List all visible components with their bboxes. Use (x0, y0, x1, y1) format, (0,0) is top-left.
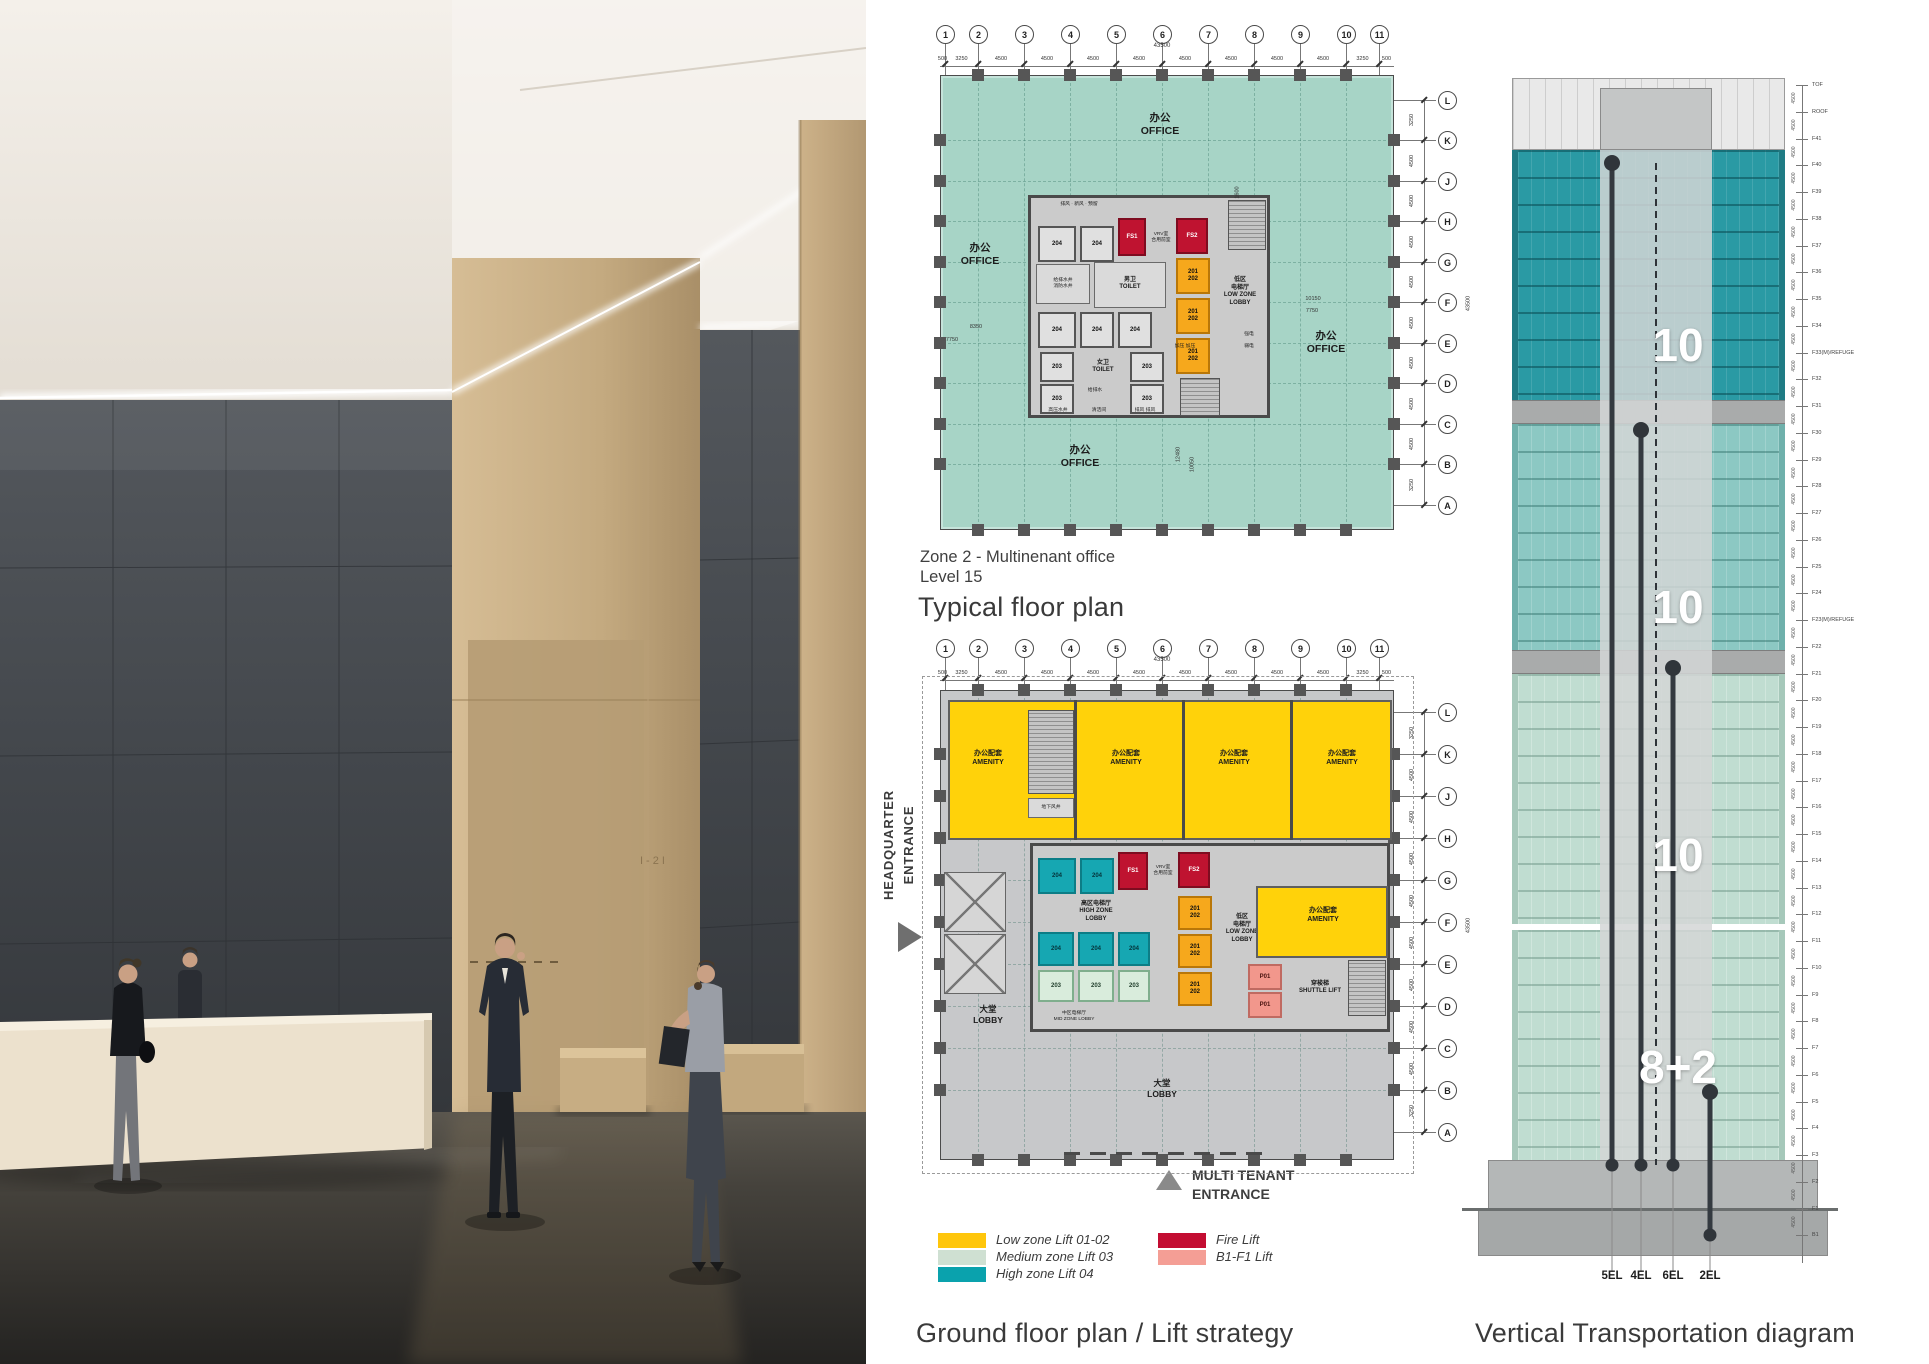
ground-grid-letter-bubble: A (1438, 1123, 1457, 1142)
floor-height-dim: 4500 (1791, 381, 1799, 403)
typical-grid-letter-bubble: E (1438, 334, 1457, 353)
ground-grid-bubble: 3 (1015, 639, 1034, 658)
floor-label: F40 (1812, 162, 1887, 169)
typical-grid-letter-bubble: F (1438, 293, 1457, 312)
floor-label: F18 (1812, 751, 1887, 758)
floor-tick (1796, 1155, 1808, 1156)
typical-dim-label: 3250 (948, 55, 976, 63)
floor-label: F27 (1812, 510, 1887, 517)
ground-grid-bubble: 9 (1291, 639, 1310, 658)
drain-label: 给排水 (1076, 386, 1114, 395)
typical-column (1340, 524, 1352, 536)
floor-tick (1796, 112, 1808, 113)
typical-grid-stem (1394, 464, 1436, 465)
floor-label: F24 (1812, 590, 1887, 597)
strong-elec-label: 强电 (1234, 330, 1264, 339)
typical-grid-letter-bubble: C (1438, 415, 1457, 434)
floor-label: F29 (1812, 457, 1887, 464)
typical-column (934, 418, 946, 430)
lift-203: 203 (1040, 352, 1074, 382)
office-label: 办公 OFFICE (1128, 112, 1192, 138)
typical-column (1388, 215, 1400, 227)
floor-tick (1796, 861, 1808, 862)
floor-tick (1796, 540, 1808, 541)
typical-grid-line (943, 424, 1391, 425)
floor-label: F12 (1812, 911, 1887, 918)
amenity-label: 办公配套 AMENITY (958, 746, 1018, 772)
legend-label: High zone Lift 04 (996, 1266, 1186, 1282)
typical-column (934, 377, 946, 389)
ground-overall-dim: 43500 (1142, 656, 1182, 664)
low-zone-lobby-label: 低区 电梯厅 LOW ZONE LOBBY (1212, 262, 1268, 322)
floor-height-dim: 4500 (1791, 542, 1799, 564)
floor-height-dim: 4500 (1791, 1157, 1799, 1179)
floor-label: F30 (1812, 430, 1887, 437)
typical-grid-stem (1394, 100, 1436, 101)
floor-tick (1796, 1048, 1808, 1049)
ground-grid-bubble: 11 (1370, 639, 1389, 658)
shaft-room-label: 给排水井 消防水井 (1038, 272, 1088, 296)
typical-column (1388, 418, 1400, 430)
escalator (944, 872, 1006, 932)
floor-tick (1796, 834, 1808, 835)
ground-grid-bubble: 7 (1199, 639, 1218, 658)
typical-grid-stem (1394, 262, 1436, 263)
entrance-door-dash (1064, 1152, 1080, 1155)
shaft-label: 2EL (1695, 1270, 1725, 1284)
floor-label: F4 (1812, 1125, 1887, 1132)
floor-label: F2 (1812, 1179, 1887, 1186)
typical-dim-label: 4500 (1125, 55, 1153, 63)
floor-tick (1796, 219, 1808, 220)
vertical-diagram-title: Vertical Transportation diagram (1450, 1318, 1880, 1349)
zone-lift-count: 10 (1633, 828, 1723, 888)
dim-label: 7750 (1292, 306, 1332, 315)
high-zone-lift: 204 (1038, 932, 1074, 966)
typical-column (972, 524, 984, 536)
high-zone-lift: 204 (1080, 858, 1114, 894)
floor-tick (1796, 1075, 1808, 1076)
floor-height-dim: 4500 (1791, 676, 1799, 698)
floor-tick (1796, 1235, 1808, 1236)
floor-height-dim: 4500 (1791, 1077, 1799, 1099)
floor-tick (1796, 1102, 1808, 1103)
typical-column (1018, 524, 1030, 536)
floor-height-dim: 4500 (1791, 1184, 1799, 1206)
floor-label: F8 (1812, 1018, 1887, 1025)
floor-tick (1796, 353, 1808, 354)
mid-zone-lift: 203 (1118, 970, 1150, 1002)
ground-grid-letter-bubble: L (1438, 703, 1457, 722)
floor-label: F10 (1812, 965, 1887, 972)
shuttle-lift: P01 (1248, 964, 1282, 990)
typical-column (1388, 337, 1400, 349)
amenity-label: 办公配套 AMENITY (1312, 746, 1372, 772)
typical-side-dim-label: 4500 (1408, 268, 1416, 296)
typical-column (1388, 377, 1400, 389)
floor-label: F34 (1812, 323, 1887, 330)
floor-height-dim: 4500 (1791, 328, 1799, 350)
high-zone-lift: 204 (1118, 932, 1150, 966)
floor-tick (1796, 299, 1808, 300)
floor-label: F15 (1812, 831, 1887, 838)
floor-height-dim: 4500 (1791, 595, 1799, 617)
office-label: 办公 OFFICE (1294, 330, 1358, 356)
entrance-door-dash (1090, 1152, 1106, 1155)
typical-dim-line (940, 66, 1394, 67)
zone-lift-count: 10 (1633, 318, 1723, 378)
floor-height-dim: 4500 (1791, 248, 1799, 270)
hp-shaft-label: 高压水井 (1036, 406, 1080, 415)
floor-tick (1796, 941, 1808, 942)
floor-label: B1 (1812, 1232, 1887, 1239)
typical-dim-label: 4500 (1171, 55, 1199, 63)
typical-dim-label: 4500 (1263, 55, 1291, 63)
typical-side-dim-label: 4500 (1408, 187, 1416, 215)
typical-column (1388, 134, 1400, 146)
entrance-door-dash (1116, 1152, 1132, 1155)
floor-tick (1796, 139, 1808, 140)
typical-grid-letter-bubble: K (1438, 131, 1457, 150)
typical-column (972, 69, 984, 81)
typical-grid-letter-bubble: G (1438, 253, 1457, 272)
floor-height-dim: 4500 (1791, 970, 1799, 992)
typical-grid-bubble: 7 (1199, 25, 1218, 44)
lift-204: 204 (1038, 312, 1076, 348)
typical-column (1202, 69, 1214, 81)
lift-204: 204 (1080, 226, 1114, 262)
ground-grid-letter-bubble: F (1438, 913, 1457, 932)
floor-height-dim: 4500 (1791, 943, 1799, 965)
typical-dim-label: 4500 (1217, 55, 1245, 63)
underground-shaft-label: 地下风井 (1026, 802, 1076, 813)
floor-height-dim: 4500 (1791, 569, 1799, 591)
ground-grid-letter-bubble: J (1438, 787, 1457, 806)
floor-height-dim: 4500 (1791, 488, 1799, 510)
floor-height-dim: 4500 (1791, 809, 1799, 831)
wall (1182, 700, 1185, 840)
typical-column (934, 134, 946, 146)
floor-height-dim: 4500 (1791, 408, 1799, 430)
typical-grid-line (943, 181, 1391, 182)
presentation-board: I-2I (0, 0, 1929, 1364)
vent-label: 排风 排风 (1124, 406, 1166, 415)
typical-grid-bubble: 10 (1337, 25, 1356, 44)
floor-height-dim: 4500 (1791, 916, 1799, 938)
typical-dim-label: 4500 (1309, 55, 1337, 63)
typical-column (1248, 524, 1260, 536)
floor-tick (1796, 513, 1808, 514)
floor-label: F14 (1812, 858, 1887, 865)
floor-tick (1796, 674, 1808, 675)
weak-elec-label: 弱电 (1234, 342, 1264, 351)
legend-swatch (1158, 1250, 1206, 1265)
dim-label: 10150 (1292, 294, 1334, 303)
high-zone-lift: 204 (1038, 858, 1076, 894)
dim-label: 8350 (956, 322, 996, 331)
floor-tick (1796, 567, 1808, 568)
ground-grid-letter-bubble: B (1438, 1081, 1457, 1100)
mid-zone-lobby-label: 中区电梯厅 MID ZONE LOBBY (1036, 1006, 1112, 1028)
legend-swatch (938, 1233, 986, 1248)
high-zone-lift: 204 (1078, 932, 1114, 966)
ground-plan-title: Ground floor plan / Lift strategy (916, 1318, 1293, 1349)
headquarter-entrance-arrow (898, 922, 922, 952)
low-zone-lift: 201 202 (1178, 934, 1212, 968)
floor-label: F9 (1812, 992, 1887, 999)
lift-204: 204 (1118, 312, 1152, 348)
zone-lift-count: 10 (1633, 580, 1723, 640)
typical-column (934, 215, 946, 227)
typical-overall-dim: 43500 (1142, 42, 1182, 50)
escalator (944, 934, 1006, 994)
floor-label: F7 (1812, 1045, 1887, 1052)
floor-tick (1796, 406, 1808, 407)
floor-tick (1796, 754, 1808, 755)
floor-height-dim: 4500 (1791, 997, 1799, 1019)
office-label: 办公 OFFICE (948, 242, 1012, 268)
ground-grid-bubble: 1 (936, 639, 955, 658)
typical-grid-letter-bubble: D (1438, 374, 1457, 393)
typical-column (1294, 69, 1306, 81)
floor-label: ROOF (1812, 109, 1887, 116)
low-zone-lift: 201 202 (1176, 258, 1210, 294)
ground-grid-letter-bubble: C (1438, 1039, 1457, 1058)
floor-label: F17 (1812, 778, 1887, 785)
lobby-photo-rendering: I-2I (0, 0, 866, 1364)
floor-label: F6 (1812, 1072, 1887, 1079)
low-zone-lift: 201 202 (1176, 298, 1210, 334)
typical-grid-stem (1394, 505, 1436, 506)
vent-label: 排风 · 新风 · 预留 (1036, 199, 1122, 211)
typical-column (1110, 69, 1122, 81)
wall (1074, 700, 1077, 840)
typical-grid-bubble: 2 (969, 25, 988, 44)
floor-tick (1796, 888, 1808, 889)
typical-column (934, 458, 946, 470)
floor-height-dim: 4500 (1791, 114, 1799, 136)
floor-height-dim: 4500 (1791, 462, 1799, 484)
clean-room-label: 清洁间 (1082, 406, 1116, 415)
floor-height-dim: 4500 (1791, 141, 1799, 163)
floor-tick (1796, 326, 1808, 327)
wall-sign: I-2I (640, 855, 668, 867)
ground-grid-bubble: 2 (969, 639, 988, 658)
fire-lift-fs2: FS2 (1176, 218, 1208, 254)
floor-label: F25 (1812, 564, 1887, 571)
shaft-label: 6EL (1658, 1270, 1688, 1284)
fire-lift-fs1: FS1 (1118, 852, 1148, 890)
low-zone-lift: 201 202 (1178, 972, 1212, 1006)
ground-grid-letter-bubble: D (1438, 997, 1457, 1016)
floor-tick (1796, 1209, 1808, 1210)
marble-wall-left (0, 400, 452, 1112)
dim-label: 12480 (1174, 435, 1183, 475)
stair (1180, 378, 1220, 416)
typical-plan-title: Typical floor plan (918, 592, 1124, 623)
floor-label: F39 (1812, 189, 1887, 196)
typical-grid-letter-bubble: B (1438, 455, 1457, 474)
typical-column (1294, 524, 1306, 536)
floor-tick (1796, 85, 1808, 86)
floor-tick (1796, 620, 1808, 621)
floor-tick (1796, 192, 1808, 193)
typical-plan-caption-line2: Level 15 (920, 568, 982, 587)
headquarter-entrance-label-line1: HEADQUARTER (881, 770, 897, 920)
floor-height-dim: 4500 (1791, 756, 1799, 778)
typical-side-dim-label: 4500 (1408, 390, 1416, 418)
floor-label: F36 (1812, 269, 1887, 276)
floor-height-dim: 4500 (1791, 1130, 1799, 1152)
typical-plan-caption-line1: Zone 2 - Multinenant office (920, 548, 1115, 567)
floor-height-dim: 4500 (1791, 890, 1799, 912)
typical-column (1388, 175, 1400, 187)
typical-grid-bubble: 5 (1107, 25, 1126, 44)
floor-label: F31 (1812, 403, 1887, 410)
lift-204: 204 (1080, 312, 1114, 348)
floor-tick (1796, 647, 1808, 648)
typical-column (1340, 69, 1352, 81)
floor-label: F41 (1812, 136, 1887, 143)
floor-label: F5 (1812, 1099, 1887, 1106)
typical-grid-stem (1394, 302, 1436, 303)
typical-column (1388, 296, 1400, 308)
typical-side-dim-label: 4500 (1408, 147, 1416, 175)
typical-side-dim-label: 4500 (1408, 228, 1416, 256)
floor-label: F37 (1812, 243, 1887, 250)
floor-tick (1796, 460, 1808, 461)
typical-column (1018, 69, 1030, 81)
floor-height-dim: 4500 (1791, 515, 1799, 537)
legend-swatch (938, 1267, 986, 1282)
typical-grid-line (943, 140, 1391, 141)
vrv-room-label: VRV室 合用前室 (1150, 856, 1176, 886)
typical-column (1388, 458, 1400, 470)
amenity-label: 办公配套 AMENITY (1096, 746, 1156, 772)
typical-side-dim-label: 3250 (1408, 471, 1416, 499)
typical-column (1064, 69, 1076, 81)
typical-side-dim-label: 4500 (1408, 349, 1416, 377)
floor-tick (1796, 433, 1808, 434)
ground-grid-bubble: 8 (1245, 639, 1264, 658)
floor-tick (1796, 246, 1808, 247)
floor-height-dim: 4500 (1791, 194, 1799, 216)
floor-height-dim: 4500 (1791, 435, 1799, 457)
floor-height-dim: 4500 (1791, 1050, 1799, 1072)
typical-column (1156, 524, 1168, 536)
lobby-label: 大堂 LOBBY (962, 1000, 1014, 1030)
floor-height-dim: 4500 (1791, 622, 1799, 644)
shaft-label: 4EL (1626, 1270, 1656, 1284)
entrance-door-dash (1168, 1152, 1184, 1155)
stair (1028, 710, 1074, 794)
typical-side-dim-label: 4500 (1408, 430, 1416, 458)
floor-height-dim: 4500 (1791, 355, 1799, 377)
floor-height-dim: 4500 (1791, 87, 1799, 109)
typical-column (934, 256, 946, 268)
typical-dim-label: 500 (1373, 55, 1401, 63)
stair (1348, 960, 1386, 1016)
toilet-f-label: 女卫 TOILET (1080, 354, 1126, 380)
legend-swatch (938, 1250, 986, 1265)
typical-column (1202, 524, 1214, 536)
typical-dim-label: 4500 (1079, 55, 1107, 63)
shuttle-lift-label: 穿梭梯 SHUTTLE LIFT (1284, 976, 1356, 1000)
typical-grid-letter-bubble: A (1438, 496, 1457, 515)
typical-column (1388, 256, 1400, 268)
floor-tick (1796, 995, 1808, 996)
typical-grid-stem (1394, 424, 1436, 425)
floor-tick (1796, 781, 1808, 782)
typical-grid-bubble: 4 (1061, 25, 1080, 44)
floor-label: F20 (1812, 697, 1887, 704)
floor-label: F1 (1812, 1206, 1887, 1213)
vrv-room-label: VRV室 合用前室 (1148, 221, 1174, 255)
floor-height-dim: 4500 (1791, 274, 1799, 296)
typical-grid-letter-bubble: L (1438, 91, 1457, 110)
entrance-door-dash (1246, 1152, 1262, 1155)
ground-grid-bubble: 4 (1061, 639, 1080, 658)
typical-dim-label: 4500 (987, 55, 1015, 63)
mid-zone-lift: 203 (1038, 970, 1074, 1002)
floor-height-dim: 4500 (1791, 1023, 1799, 1045)
stair (1228, 200, 1266, 250)
typical-grid-stem (1394, 343, 1436, 344)
mid-zone-lift: 203 (1078, 970, 1114, 1002)
legend-swatch (1158, 1233, 1206, 1248)
typical-grid-stem (1394, 181, 1436, 182)
floor-height-dim: 4500 (1791, 702, 1799, 724)
lift-203: 203 (1130, 352, 1164, 382)
legend-label: Fire Lift (1216, 1232, 1406, 1248)
floor-label: TOF (1812, 82, 1887, 89)
typical-column (1156, 69, 1168, 81)
typical-grid-bubble: 9 (1291, 25, 1310, 44)
floor-label: F22 (1812, 644, 1887, 651)
floor-label: F26 (1812, 537, 1887, 544)
dim-label: 1600 (1233, 178, 1242, 208)
floor-label: F13 (1812, 885, 1887, 892)
typical-column (1110, 524, 1122, 536)
entrance-door-dash (1220, 1152, 1236, 1155)
floor-label: F16 (1812, 804, 1887, 811)
legend-label: B1-F1 Lift (1216, 1249, 1406, 1265)
floor-label: F38 (1812, 216, 1887, 223)
fire-lift-fs1: FS1 (1118, 218, 1146, 256)
typical-grid-bubble: 8 (1245, 25, 1264, 44)
high-zone-lobby-label: 高区电梯厅 HIGH ZONE LOBBY (1060, 896, 1132, 928)
typical-grid-stem (1394, 221, 1436, 222)
pressurize-label: 加压 加压 (1166, 342, 1204, 351)
floor-tick (1796, 727, 1808, 728)
ground-grid-letter-bubble: H (1438, 829, 1457, 848)
typical-grid-line (943, 464, 1391, 465)
floor-height-dim: 4500 (1791, 1104, 1799, 1126)
typical-side-overall-dim: 43500 (1464, 283, 1473, 323)
floor-height-dim: 4500 (1791, 783, 1799, 805)
floor-height-dim: 4500 (1791, 167, 1799, 189)
floor-height-dim: 4500 (1791, 221, 1799, 243)
floor-label: F3 (1812, 1152, 1887, 1159)
floor-height-dim: 4500 (1791, 729, 1799, 751)
ground-grid-letter-bubble: E (1438, 955, 1457, 974)
floor-height-dim: 4500 (1791, 863, 1799, 885)
floor-label: F11 (1812, 938, 1887, 945)
toilet-m-label: 男卫 TOILET (1100, 270, 1160, 298)
typical-grid-letter-bubble: H (1438, 212, 1457, 231)
low-zone-lift: 201 202 (1178, 896, 1212, 930)
floor-label: F35 (1812, 296, 1887, 303)
